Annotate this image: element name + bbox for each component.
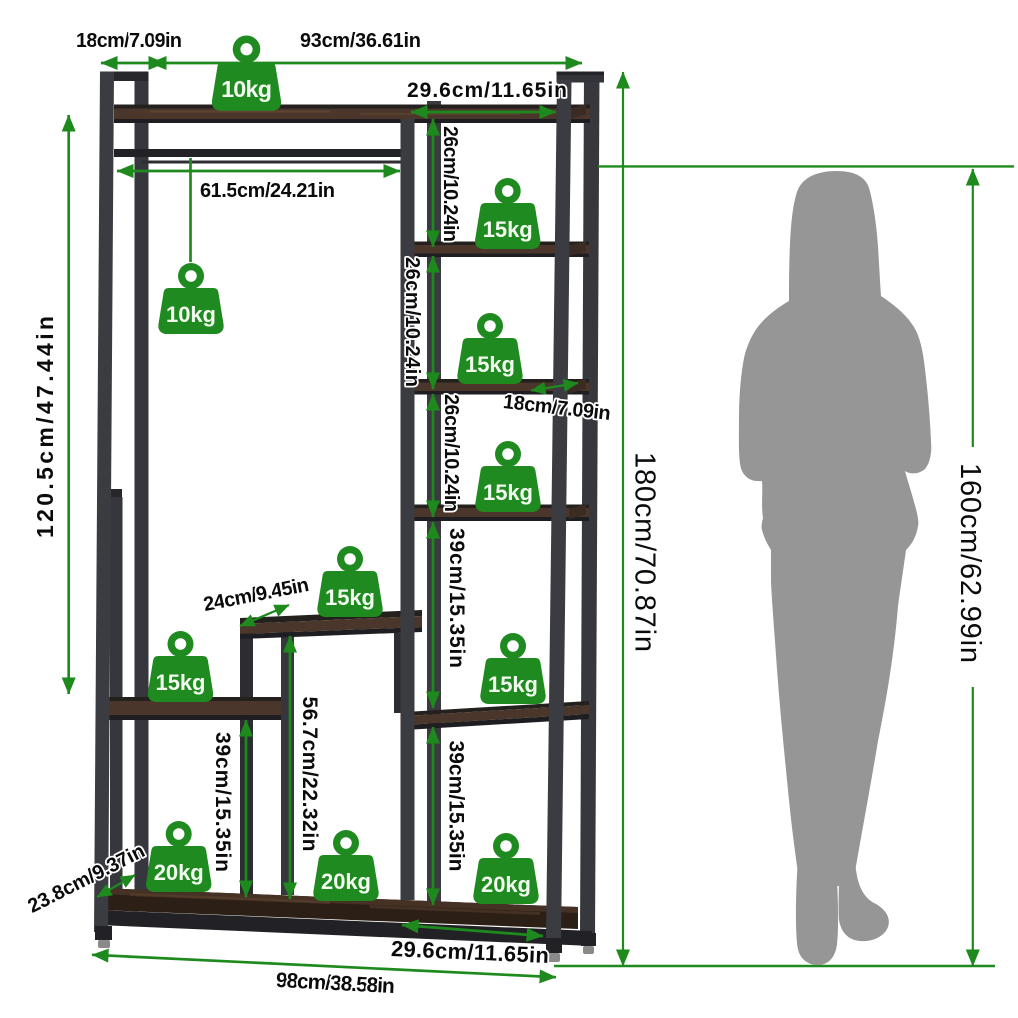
svg-text:15kg: 15kg (483, 217, 533, 242)
svg-text:39cm/15.35in: 39cm/15.35in (211, 732, 234, 872)
svg-text:26cm/10.24in: 26cm/10.24in (440, 394, 462, 512)
svg-text:160cm/62.99in: 160cm/62.99in (954, 463, 986, 663)
svg-text:15kg: 15kg (488, 672, 538, 697)
svg-text:39cm/15.35in: 39cm/15.35in (445, 528, 468, 668)
svg-text:29.6cm/11.65in: 29.6cm/11.65in (407, 79, 567, 102)
svg-text:15kg: 15kg (483, 480, 533, 505)
svg-text:10kg: 10kg (166, 302, 216, 327)
svg-text:26cm/10.24in: 26cm/10.24in (439, 126, 461, 242)
svg-text:98cm/38.58in: 98cm/38.58in (275, 969, 395, 998)
svg-text:20kg: 20kg (321, 869, 371, 894)
svg-text:120.5cm/47.44in: 120.5cm/47.44in (32, 316, 58, 538)
svg-text:20kg: 20kg (154, 860, 204, 885)
svg-text:24cm/9.45in: 24cm/9.45in (202, 574, 311, 616)
svg-text:56.7cm/22.32in: 56.7cm/22.32in (298, 697, 321, 852)
svg-text:20kg: 20kg (481, 872, 531, 897)
svg-text:10kg: 10kg (221, 76, 272, 102)
svg-text:39cm/15.35in: 39cm/15.35in (445, 741, 468, 872)
svg-text:15kg: 15kg (325, 585, 375, 610)
svg-text:18cm/7.09in: 18cm/7.09in (76, 30, 182, 52)
svg-text:93cm/36.61in: 93cm/36.61in (300, 30, 421, 52)
svg-text:180cm/70.87in: 180cm/70.87in (629, 452, 661, 652)
svg-text:15kg: 15kg (156, 670, 206, 695)
svg-text:26cm/10.24in: 26cm/10.24in (401, 257, 423, 387)
svg-text:15kg: 15kg (465, 352, 515, 377)
svg-text:61.5cm/24.21in: 61.5cm/24.21in (200, 180, 335, 202)
